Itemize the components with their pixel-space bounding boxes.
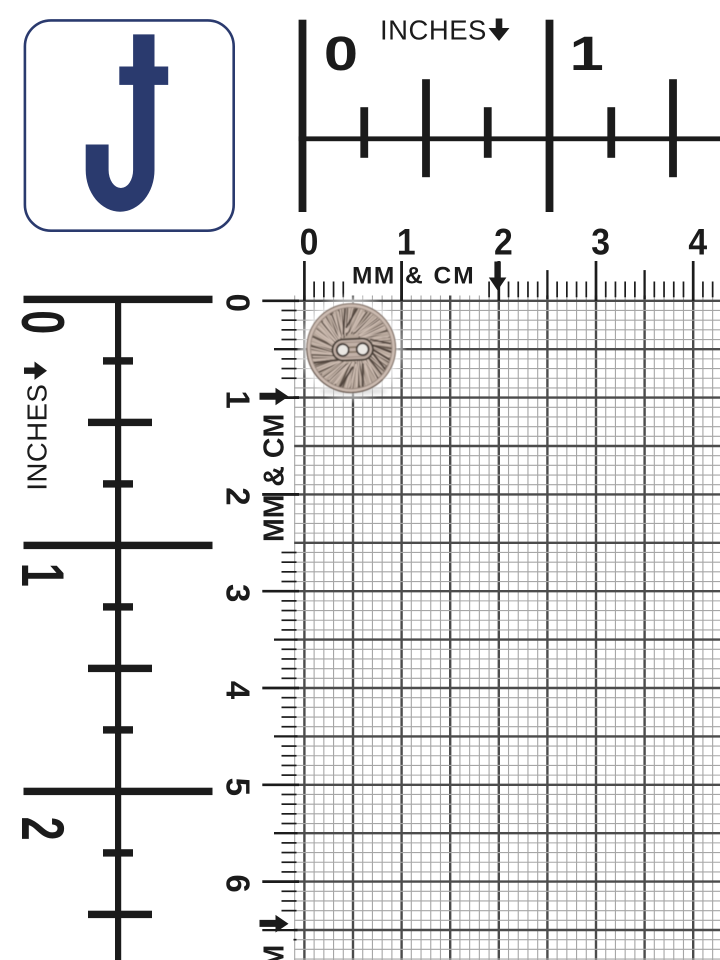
svg-text:MM & CM: MM & CM [258,414,290,542]
svg-text:1: 1 [8,563,75,587]
svg-text:MM: MM [352,263,396,290]
svg-text:2: 2 [220,487,257,505]
svg-text:4: 4 [220,681,257,700]
svg-text:3: 3 [591,221,610,263]
svg-text:0: 0 [220,294,257,312]
svg-text:1: 1 [397,221,416,263]
svg-text:5: 5 [220,778,257,796]
svg-text:M: M [258,945,290,960]
svg-text:1: 1 [570,26,604,80]
svg-text:1: 1 [220,390,257,408]
svg-text:6: 6 [220,874,257,892]
svg-text:0: 0 [300,221,319,263]
svg-text:4: 4 [688,221,707,263]
svg-text:INCHES: INCHES [380,15,487,46]
svg-text:0: 0 [324,26,358,80]
svg-text:2: 2 [494,221,513,263]
svg-text:0: 0 [8,310,75,334]
svg-text:3: 3 [220,584,257,602]
svg-text:2: 2 [8,817,75,841]
svg-text:INCHES: INCHES [22,384,53,491]
svg-text:& CM: & CM [405,263,476,290]
